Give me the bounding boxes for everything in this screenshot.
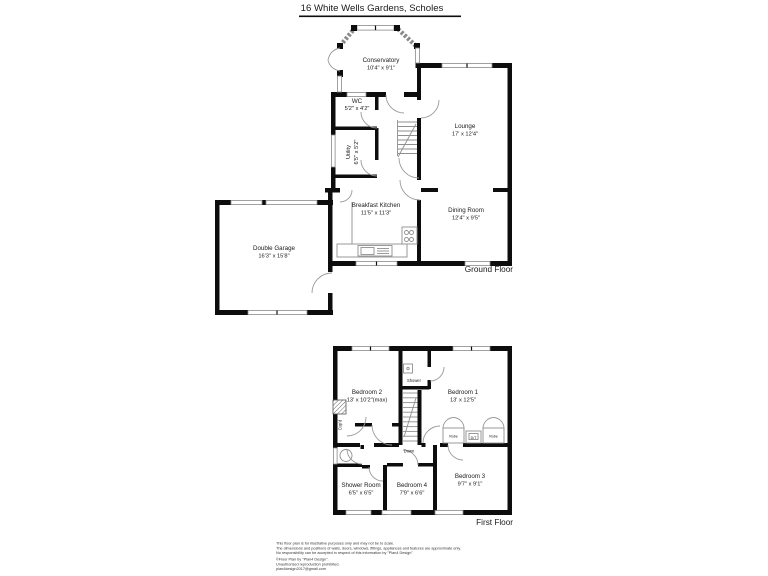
first-floor-label: First Floor [476,518,513,527]
room-label-shower: Shower [407,378,422,383]
floorplan-page: 16 White Wells Gardens, Scholes [0,0,768,576]
stairs-up-icon [398,120,418,157]
disclaimer-line-2: The dimensions and positions of walls, d… [276,546,461,550]
room-label-cupboard: Cup'd [338,419,343,430]
room-label-cupboard-group: Cup'd [338,419,343,430]
stairs-down-icon [403,393,418,441]
room-dims-bedroom-4: 7'9" x 6'6" [400,491,425,497]
shower-tray-icon [404,364,413,373]
room-label-lounge: Lounge [455,123,476,130]
ground-floor-windows [231,48,492,315]
down-label: Down [404,449,415,454]
room-dims-bedroom-1: 13' x 12'5" [450,398,476,404]
robe-left-label: Robe [449,435,458,439]
disclaimer-line-6: plan4design2017@gmail.com [276,567,326,571]
ground-floor-label: Ground Floor [465,265,514,274]
room-label-wc: WC [352,98,363,105]
robe-right-label: Robe [489,435,498,439]
room-dims-bedroom-3: 9'7" x 9'1" [458,482,483,488]
disclaimer-line-3: No responsibility can be accepted in res… [276,551,413,555]
room-label-double-garage: Double Garage [253,245,296,252]
room-label-utility: Utility [346,145,352,159]
disclaimer-line-4: ©Floor Plan by "Plan4 Design". [276,558,329,562]
room-label-bedroom-4: Bedroom 4 [397,482,428,489]
room-dims-double-garage: 16'3" x 15'8" [258,254,289,260]
room-label-dining-room: Dining Room [448,207,484,214]
room-dims-lounge: 17' x 12'4" [452,132,478,138]
disclaimer-line-5: Unauthorised reproduction prohibited. [276,562,340,566]
room-dims-bedroom-2: 13' x 10'2"(max) [347,398,388,404]
first-floor-plan: Bedroom 2 13' x 10'2"(max) Bedroom 1 13'… [333,346,513,527]
page-title: 16 White Wells Gardens, Scholes [301,3,444,14]
cupboard-hatch-icon [333,400,346,414]
room-label-conservatory: Conservatory [363,57,401,64]
floorplan-drawing: 16 White Wells Gardens, Scholes [0,0,768,576]
room-dims-shower-room: 6'5" x 6'5" [349,491,374,497]
room-dims-breakfast-kitchen: 11'5" x 11'3" [361,211,391,217]
title-underline [299,16,461,18]
room-dims-utility: 6'5" x 5'2" [354,140,360,165]
room-label-bedroom-2: Bedroom 2 [352,389,383,396]
room-dims-conservatory: 10'4" x 9'1" [367,66,395,72]
disclaimer-block: This floor plan is for illustrative purp… [276,542,461,572]
room-dims-dining-room: 12'4" x 9'5" [452,216,480,222]
basin-icon [340,450,352,462]
room-label-breakfast-kitchen: Breakfast Kitchen [352,202,401,209]
room-label-utility-group: Utility 6'5" x 5'2" [346,140,360,165]
ground-floor-plan: Conservatory 10'4" x 9'1" WC 5'2" x 4'2"… [215,25,513,315]
room-label-bedroom-3: Bedroom 3 [455,473,486,480]
room-label-shower-room: Shower Room [341,482,380,489]
room-label-bedroom-1: Bedroom 1 [448,389,479,396]
dt-label: D/T [471,436,478,440]
disclaimer-line-1: This floor plan is for illustrative purp… [276,542,394,546]
room-dims-wc: 5'2" x 4'2" [345,106,370,112]
